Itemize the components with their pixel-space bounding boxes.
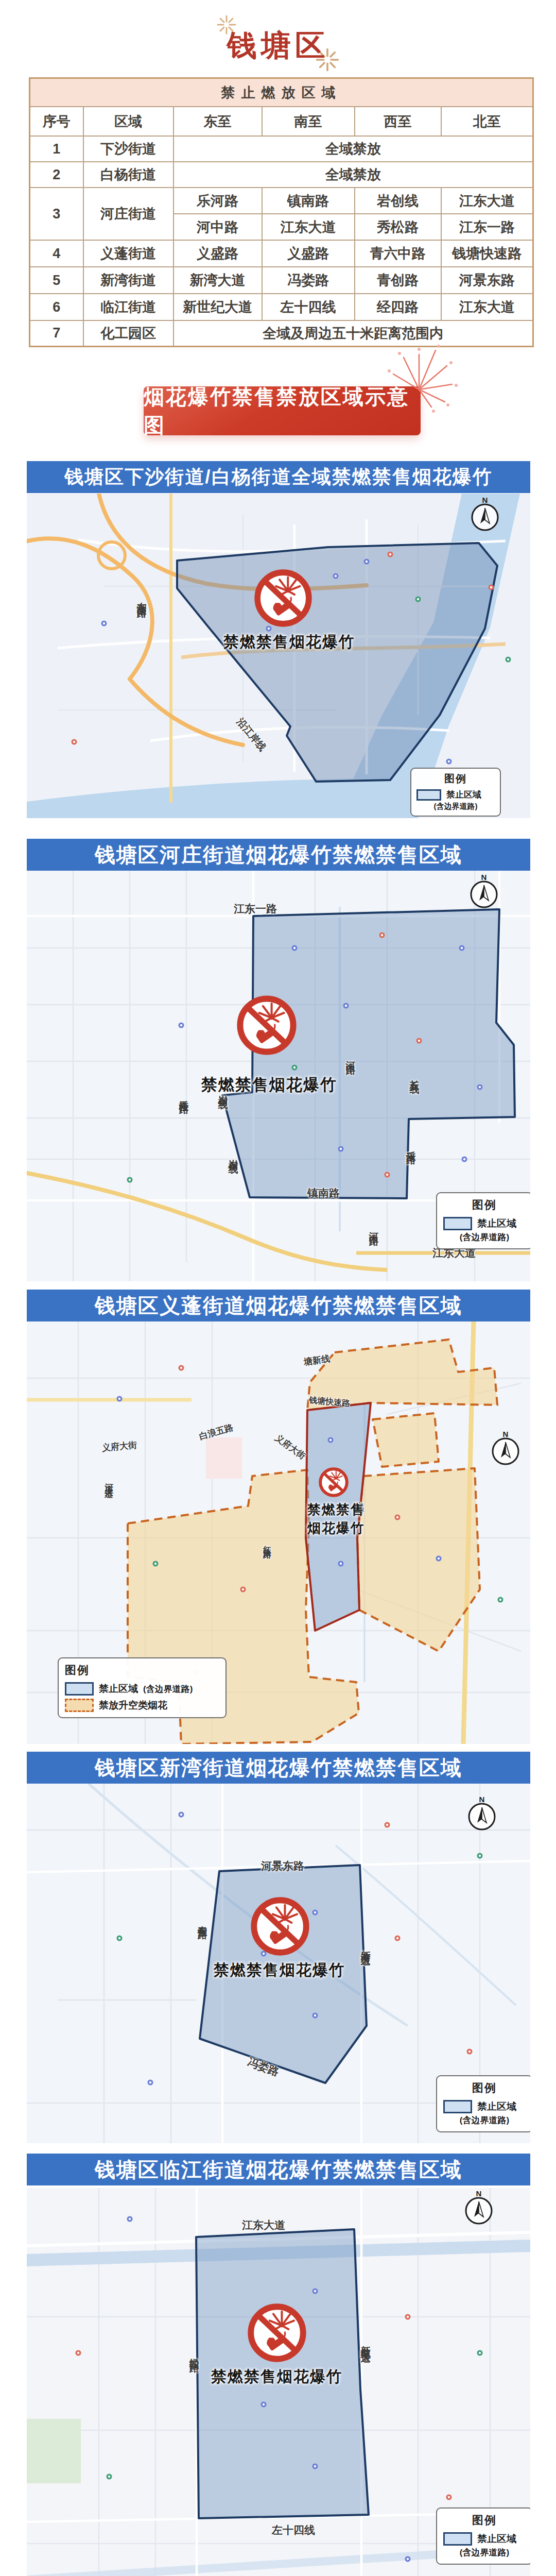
road-label: 新世纪大道 [359,2337,372,2348]
road-label: 河庄大道 [103,1476,115,1484]
legend-note: (含边界道路) [443,2547,526,2558]
section-header-linjiang: 钱塘区临江街道烟花爆竹禁燃禁售区域 [27,2154,530,2185]
legend: 图例 禁止区域 (含边界道路) [436,1192,530,1249]
table-cell: 乐河路 [173,188,262,214]
table-title: 禁止燃放区域 [30,78,533,107]
legend-note: (含边界道路) [443,2114,526,2126]
road-label: 青创路 [196,1918,209,1924]
road-label: 河景东路 [261,1859,304,1873]
ban-zone-swatch [65,1682,94,1696]
table-cell: 冯娄路 [262,267,355,294]
table-cell: 新湾大道 [173,267,262,294]
table-cell: 下沙街道 [83,136,173,162]
legend-note: (含边界道路) [443,1231,526,1243]
table-cell: 河景东路 [441,267,533,294]
table-cell: 江东大道 [262,214,355,240]
table-cell: 左十四线 [262,294,355,320]
ban-zone-swatch [443,2532,472,2546]
compass-icon: N [468,497,501,535]
table-cell: 江东大道 [441,188,533,214]
table-cell: 义蓬街道 [83,240,173,267]
road-label: 镇南路 [307,1186,340,1200]
legend-label: 禁止区域 [477,1217,516,1230]
prohibited-areas-table: 禁止燃放区域 序号 区域 东至 南至 西至 北至 1 下沙街道 全域禁放 2 白… [29,77,534,347]
banner-title: 烟花爆竹禁售禁放区域示意图 [144,383,421,439]
compass-icon: N [489,1431,522,1469]
no-fireworks-icon [236,994,298,1056]
table-cell: 7 [30,320,83,346]
table-cell: 青创路 [355,267,441,294]
table-cell: 青六中路 [355,240,441,267]
compass-icon: N [467,874,500,912]
section-header-hezhuang: 钱塘区河庄街道烟花爆竹禁燃禁售区域 [27,839,530,871]
legend-label: 禁放升空类烟花 [99,1699,167,1712]
legend-note: (含边界道路) [143,1683,193,1695]
table-cell: 江东大道 [441,294,533,320]
legend: 图例 禁止区域 (含边界道路) [436,2075,530,2132]
zone-label: 禁燃禁售烟花爆竹 [202,2366,352,2387]
table-cell: 化工园区 [83,320,173,346]
road-label: 乐河路 [404,1143,418,1149]
table-cell: 2 [30,162,83,188]
road-label: 长五线 [408,1072,421,1078]
road-label: 左十四线 [272,2523,315,2537]
table-cell: 岩创线 [355,188,441,214]
zone-label: 禁燃禁售烟花爆竹 [195,1074,344,1096]
road-label: 河中路 [367,1224,380,1230]
table-cell: 江东一路 [441,214,533,240]
table-cell: 1 [30,136,83,162]
zone-label: 禁燃禁售烟花爆竹 [212,632,367,653]
aerial-fireworks-swatch [65,1699,94,1712]
legend-label: 禁止区域 [99,1682,138,1696]
map-xiasha-baiyang: 禁燃禁售烟花爆竹 东湖南路 沿江岸线 N 图例 禁止区域 (含边界道路) [27,494,530,818]
table-col-header: 东至 [173,107,262,136]
ban-zone-swatch [443,1217,472,1230]
zone-label: 禁燃禁售烟花爆竹 [205,1960,354,1981]
table-cell: 经四路 [355,294,441,320]
no-fireworks-icon [247,2302,307,2363]
legend: 图例 禁止区域 (含边界道路) 禁放升空类烟花 [58,1657,227,1718]
table-cell: 3 [30,188,83,240]
road-label: 红康路 [262,1539,272,1545]
road-label: 岩创线 [227,1151,240,1158]
legend-label: 禁止区域 [477,2100,516,2113]
legend-title: 图例 [443,2513,526,2528]
table-cell: 河中路 [173,214,262,240]
legend-label: 禁止区域 [446,789,481,801]
zone-label: 禁燃禁售 [287,1501,385,1519]
table-cell: 义盛路 [262,240,355,267]
map-linjiang: 禁燃禁售烟花爆竹 江东大道 经四路 新世纪大道 左十四线 N 图例 禁止区域 (… [27,2188,530,2576]
legend-title: 图例 [443,1197,526,1213]
section-header-xiasha-baiyang: 钱塘区下沙街道/白杨街道全域禁燃禁售烟花爆竹 [27,461,530,493]
table-cell: 秀松路 [355,214,441,240]
legend-label: 禁止区域 [477,2532,516,2546]
legend-title: 图例 [416,772,495,786]
legend-title: 图例 [443,2080,526,2096]
legend-title: 图例 [65,1663,219,1678]
firework-burst-icon [382,340,464,417]
table-cell: 白杨街道 [83,162,173,188]
table-col-header: 北至 [441,107,533,136]
article-page: 钱塘区 禁止燃放区域 序号 区域 东至 南至 西至 北至 1 下沙街道 全域禁放… [0,0,556,2576]
section-header-yipeng: 钱塘区义蓬街道烟花爆竹禁燃禁售区域 [27,1290,530,1321]
road-label: 经四路 [187,2351,201,2357]
section-header-xinwan: 钱塘区新湾街道烟花爆竹禁燃禁售区域 [27,1752,530,1784]
table-col-header: 南至 [262,107,355,136]
road-label: 秀松路 [177,1092,190,1098]
table-cell: 义盛路 [173,240,262,267]
map-yipeng: 禁燃禁售 烟花爆竹 塘新线 钱塘快速路 白浪五路 义府大街 义府大街 河庄大道 … [27,1321,530,1744]
table-cell: 6 [30,294,83,320]
ban-zone-swatch [443,2100,472,2113]
table-cell: 镇南路 [262,188,355,214]
legend-note: (含边界道路) [416,802,495,811]
road-label: 义盛路 [354,1495,365,1501]
table-cell: 新湾街道 [83,267,173,294]
zone-label: 烟花爆竹 [287,1519,385,1537]
compass-icon: N [462,2190,495,2228]
no-fireworks-icon [250,1896,310,1957]
table-col-header: 西至 [355,107,441,136]
map-xinwan: 禁燃禁售烟花爆竹 河景东路 青创路 新湾大道 冯娄路 N 图例 禁止区域 (含边… [27,1784,530,2143]
map-hezhuang: 禁燃禁售烟花爆竹 江东一路 秀松路 河中路 长五线 岩创线 乐河路 岩创线 河中… [27,871,530,1281]
table-cell: 临江街道 [83,294,173,320]
table-cell: 钱塘快速路 [441,240,533,267]
table-col-header: 区域 [83,107,173,136]
legend: 图例 禁止区域 (含边界道路) [436,2507,530,2565]
no-fireworks-icon [318,1467,349,1498]
road-label: 河中路 [344,1053,357,1059]
compass-icon: N [465,1796,498,1834]
road-label: 东湖南路 [135,594,148,602]
road-label: 江东一路 [234,902,277,916]
road-label: 新湾大道 [359,1942,372,1951]
table-cell: 全域禁放 [173,136,533,162]
table-cell: 新世纪大道 [173,294,262,320]
page-title: 钱塘区 [0,26,556,66]
ban-zone-swatch [416,789,441,801]
no-fireworks-icon [253,568,313,628]
legend: 图例 禁止区域 (含边界道路) [410,768,501,817]
table-cell: 河庄街道 [83,188,173,240]
banner: 烟花爆竹禁售禁放区域示意图 [144,386,421,435]
table-col-header: 序号 [30,107,83,136]
table-cell: 全域禁放 [173,162,533,188]
table-cell: 4 [30,240,83,267]
table-cell: 5 [30,267,83,294]
table-cell: 全域及周边五十米距离范围内 [173,320,533,346]
road-label: 江东大道 [242,2218,285,2232]
